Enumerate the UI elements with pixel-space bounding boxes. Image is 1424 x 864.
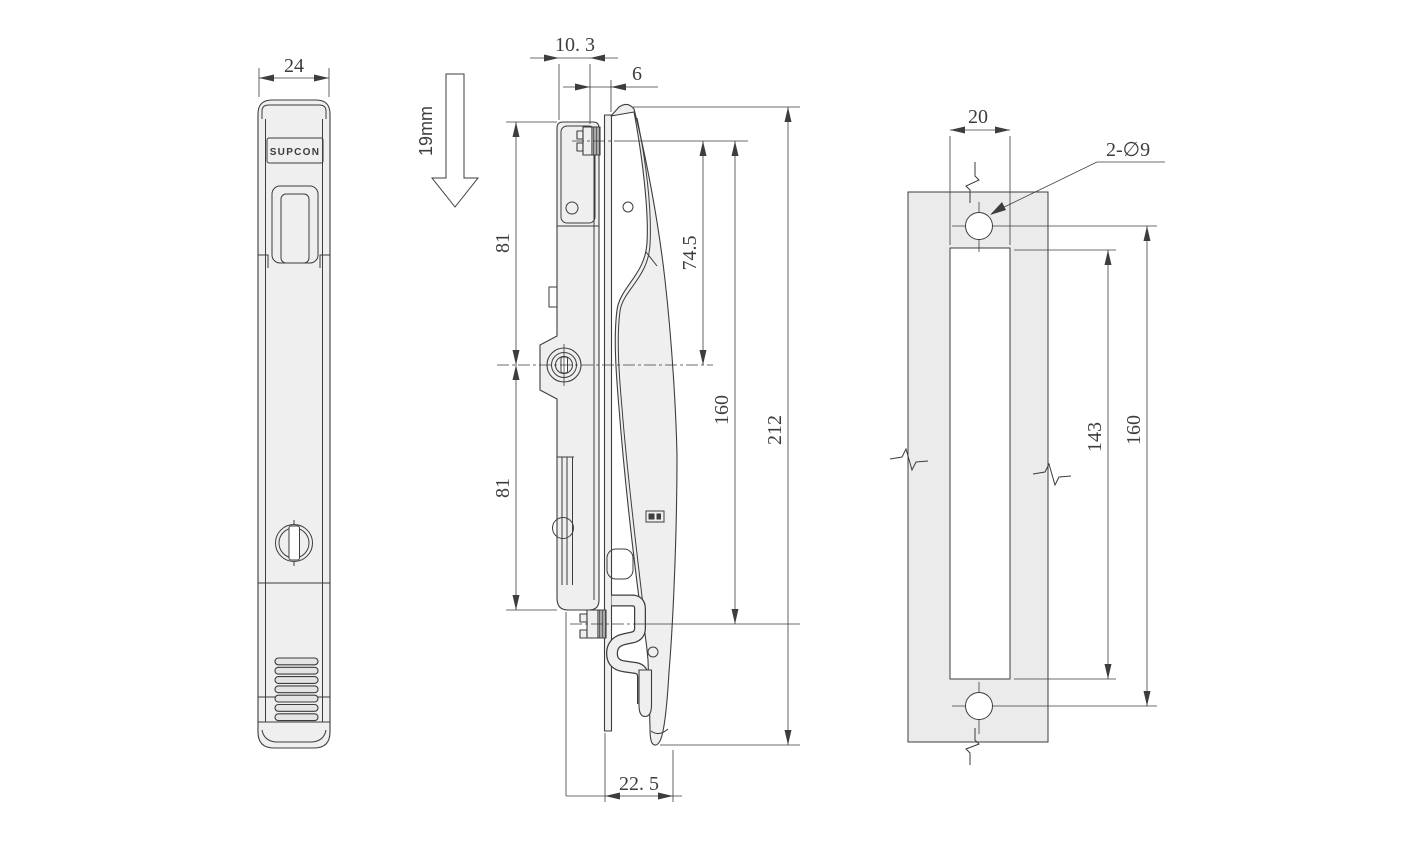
dim-hook-label: 22. 5: [619, 773, 659, 795]
mounting-hole-top: [966, 213, 993, 240]
cutout-slot: [950, 248, 1010, 679]
drawing-canvas: 24 SUPCON: [0, 0, 1424, 864]
dim-offset: 74.5: [679, 141, 707, 365]
mounting-plate: [605, 115, 612, 731]
dim-hole-pitch: 160: [1123, 226, 1151, 706]
grip-ribs: [275, 658, 318, 721]
dim-hole-pitch-label: 160: [1123, 415, 1145, 445]
brand-label: SUPCON: [270, 147, 321, 158]
press-direction-arrow: 19mm: [416, 74, 478, 207]
dim-upper: 81: [492, 122, 520, 365]
dim-gap: 6: [563, 63, 658, 112]
dim-slot-width-label: 20: [968, 106, 988, 128]
dim-depth: 10. 3: [530, 34, 618, 124]
cutout-view: 20 2-∅9 143 160: [890, 106, 1165, 765]
dim-gap-label: 6: [632, 63, 642, 85]
dim-upper-label: 81: [492, 233, 514, 253]
dim-pitch-label: 160: [711, 395, 733, 425]
dim-pitch: 160: [711, 141, 739, 624]
hole-callout-label: 2-∅9: [1106, 139, 1150, 161]
dim-width: 24: [259, 55, 329, 97]
front-view: 24 SUPCON: [258, 55, 330, 748]
dim-lower-label: 81: [492, 478, 514, 498]
dim-slot-length-label: 143: [1084, 422, 1106, 452]
side-view: 19mm: [416, 34, 800, 802]
engineering-drawing: 24 SUPCON: [0, 0, 1424, 864]
dim-slot-length: 143: [1084, 250, 1112, 679]
dim-length-label: 212: [764, 415, 786, 445]
dim-length: 212: [764, 107, 792, 745]
dim-offset-label: 74.5: [679, 236, 701, 271]
press-direction-label: 19mm: [416, 106, 436, 156]
dim-depth-label: 10. 3: [555, 34, 595, 56]
dim-width-label: 24: [284, 55, 304, 77]
handle-body-front: [258, 100, 330, 748]
dim-lower: 81: [492, 365, 520, 610]
mounting-hole-bottom: [966, 693, 993, 720]
